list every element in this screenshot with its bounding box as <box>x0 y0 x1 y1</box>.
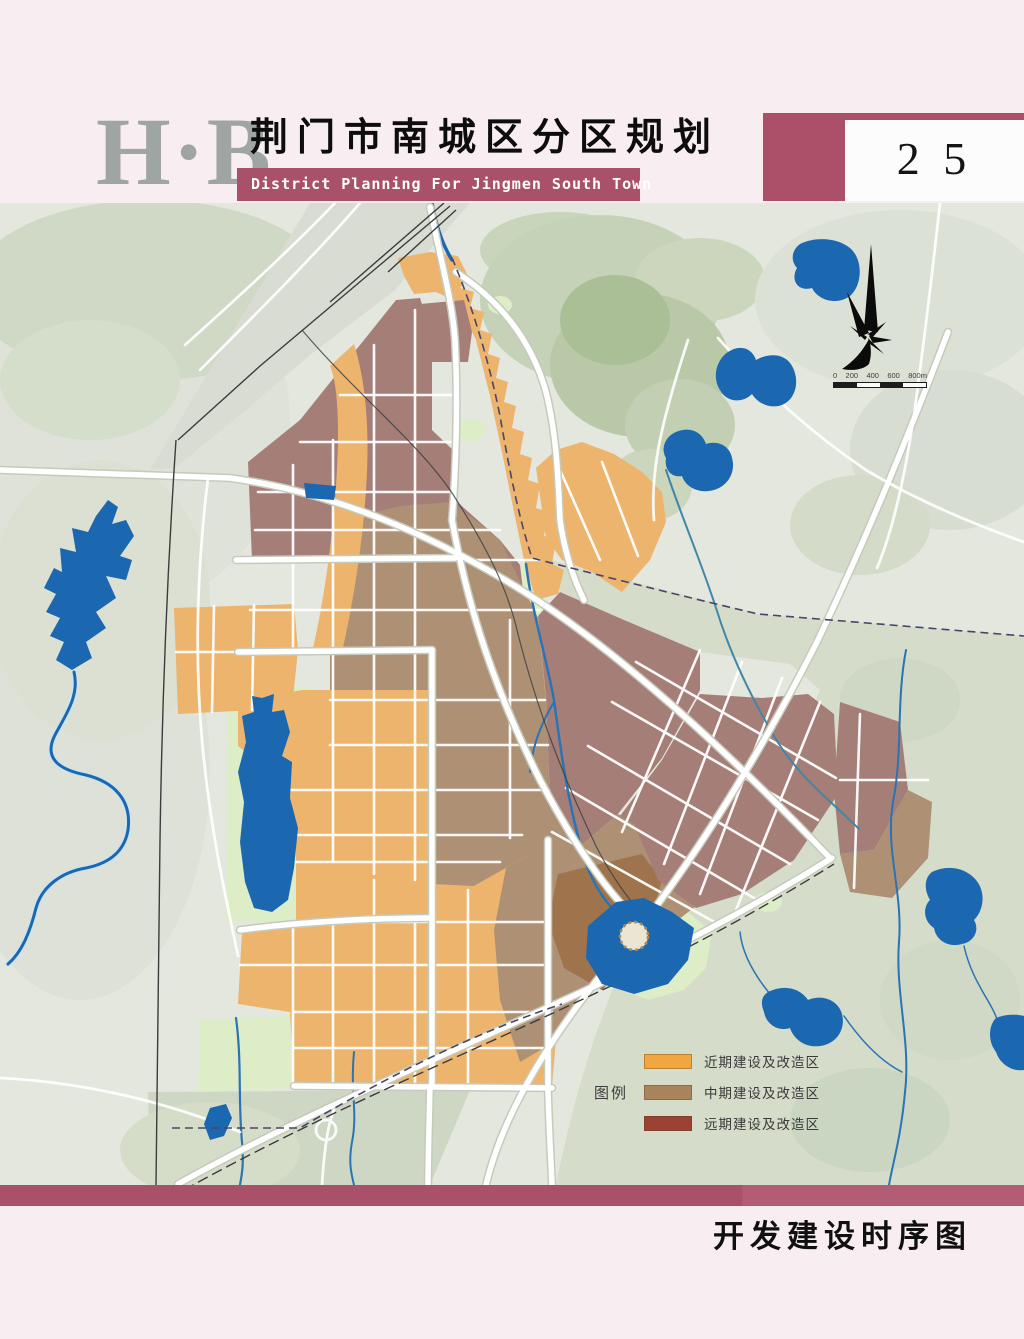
legend-item-long-term: 远期建设及改造区 <box>644 1113 820 1133</box>
legend-swatch-near-term <box>644 1054 692 1069</box>
footer-divider-bar <box>0 1185 1024 1206</box>
legend-swatch-long-term <box>644 1116 692 1131</box>
legend-swatch-mid-term <box>644 1085 692 1100</box>
planning-map <box>0 0 1024 1339</box>
map-caption: 开发建设时序图 <box>713 1211 972 1256</box>
north-arrow-icon <box>842 234 898 381</box>
circular-plaza <box>620 922 648 950</box>
scale-strip <box>833 382 927 388</box>
legend-title: 图例 <box>594 1082 628 1103</box>
scale-labels: 0 200 400 600 800m <box>833 371 927 380</box>
legend-item-near-term: 近期建设及改造区 <box>644 1051 820 1071</box>
map-legend: 图例 近期建设及改造区 中期建设及改造区 远期建设及改造区 <box>594 1051 820 1133</box>
page: H·B 荆门市南城区分区规划 District Planning For Jin… <box>0 0 1024 1339</box>
legend-item-mid-term: 中期建设及改造区 <box>644 1082 820 1102</box>
scale-bar: 0 200 400 600 800m <box>833 371 927 388</box>
